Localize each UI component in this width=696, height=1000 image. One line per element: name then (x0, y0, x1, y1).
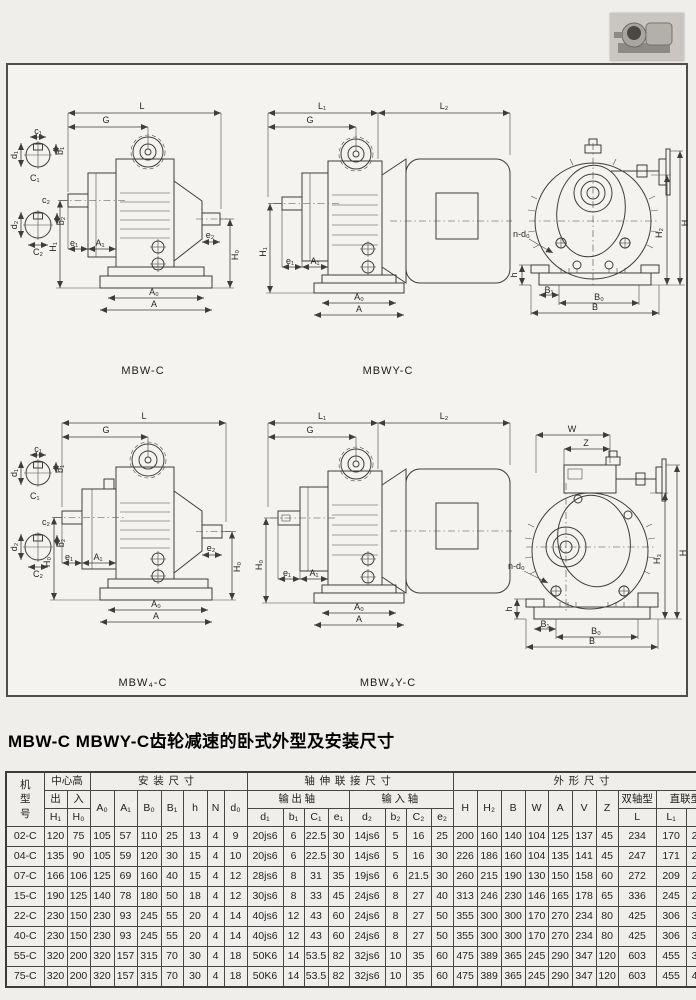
value-cell: 365 (501, 967, 525, 988)
value-cell: 313 (453, 887, 477, 907)
value-cell: 104 (525, 847, 548, 867)
value-cell: 5 (385, 827, 406, 847)
value-cell: 425 (618, 927, 656, 947)
value-cell: 6 (283, 827, 304, 847)
value-cell: 75 (67, 827, 90, 847)
header-in-shaft: 输入轴 (349, 791, 453, 809)
value-cell: 120 (137, 847, 161, 867)
header-L2: L₂ (686, 809, 696, 827)
value-cell: 135 (548, 847, 572, 867)
model-cell: 07-C (6, 867, 44, 887)
value-cell: 4 (207, 947, 224, 967)
value-cell: 30 (431, 847, 453, 867)
value-cell: 125 (67, 887, 90, 907)
header-N: N (207, 791, 224, 827)
header-shaft-conn: 轴伸联接尺寸 (247, 772, 453, 791)
value-cell: 603 (618, 947, 656, 967)
model-cell: 02-C (6, 827, 44, 847)
value-cell: 80 (596, 927, 618, 947)
value-cell: 93 (114, 907, 137, 927)
dim-label: L₁ (318, 101, 326, 111)
dim-label: G (306, 425, 313, 435)
dim-label: L₁ (318, 411, 326, 421)
dim-label: d₂ (9, 220, 19, 229)
value-cell: 32js6 (349, 967, 385, 988)
value-cell: 200 (686, 827, 696, 847)
value-cell: 306 (656, 907, 686, 927)
dim-label: H₃ (652, 554, 662, 564)
value-cell: 455 (656, 967, 686, 988)
value-cell: 14 (224, 907, 247, 927)
value-cell: 347 (572, 967, 596, 988)
header-d0: d₀ (224, 791, 247, 827)
value-cell: 157 (114, 967, 137, 988)
value-cell: 30 (328, 847, 349, 867)
value-cell: 24js6 (349, 927, 385, 947)
value-cell: 180 (137, 887, 161, 907)
value-cell: 40 (161, 867, 183, 887)
header-direct-type: 直联型 (656, 791, 696, 809)
value-cell: 45 (596, 847, 618, 867)
value-cell: 320 (44, 947, 67, 967)
dim-label: B₀ (594, 292, 604, 302)
value-cell: 25 (431, 827, 453, 847)
value-cell: 247 (618, 847, 656, 867)
value-cell: 245 (686, 867, 696, 887)
value-cell: 246 (477, 887, 501, 907)
value-cell: 130 (525, 867, 548, 887)
dim-label: L (139, 101, 144, 111)
value-cell: 306 (656, 927, 686, 947)
value-cell: 158 (572, 867, 596, 887)
value-cell: 33 (304, 887, 328, 907)
value-cell: 230 (44, 907, 67, 927)
value-cell: 4 (207, 867, 224, 887)
value-cell: 43 (304, 927, 328, 947)
value-cell: 355 (453, 927, 477, 947)
value-cell: 300 (477, 927, 501, 947)
value-cell: 120 (596, 947, 618, 967)
value-cell: 347 (572, 947, 596, 967)
value-cell: 8 (385, 907, 406, 927)
value-cell: 18 (224, 947, 247, 967)
header-d1: d₁ (247, 809, 283, 827)
dim-label: B (592, 302, 598, 312)
value-cell: 32js6 (349, 947, 385, 967)
header-B0: B₀ (137, 791, 161, 827)
value-cell: 603 (618, 967, 656, 988)
value-cell: 160 (477, 827, 501, 847)
value-cell: 45 (328, 887, 349, 907)
caption-mbw4-c: MBW₄-C (58, 677, 228, 689)
value-cell: 30 (431, 867, 453, 887)
dim-label: C₁ (30, 173, 40, 183)
value-cell: 389 (477, 947, 501, 967)
header-L1: L₁ (656, 809, 686, 827)
dim-label: C₂ (33, 569, 43, 579)
value-cell: 12 (224, 867, 247, 887)
value-cell: 165 (548, 887, 572, 907)
value-cell: 160 (501, 847, 525, 867)
value-cell: 4 (207, 847, 224, 867)
value-cell: 270 (548, 927, 572, 947)
value-cell: 70 (161, 967, 183, 988)
model-cell: 04-C (6, 847, 44, 867)
header-A: A (548, 791, 572, 827)
value-cell: 93 (114, 927, 137, 947)
value-cell: 22.5 (304, 827, 328, 847)
value-cell: 12 (283, 927, 304, 947)
header-row-1: 机型号 中心高 安装尺寸 轴伸联接尺寸 外形尺寸 (6, 772, 696, 791)
value-cell: 40js6 (247, 927, 283, 947)
value-cell: 9 (224, 827, 247, 847)
value-cell: 10 (385, 967, 406, 988)
value-cell: 320 (44, 967, 67, 988)
header-H0: H₀ (67, 809, 90, 827)
value-cell: 30js6 (247, 887, 283, 907)
table-row: 55-C320200320157315703041850K61453.58232… (6, 947, 696, 967)
value-cell: 455 (656, 947, 686, 967)
dim-label: e₁ (70, 238, 78, 248)
dim-label: H₀ (254, 560, 264, 570)
product-photo-art (610, 13, 684, 61)
value-cell: 389 (477, 967, 501, 988)
table-row: 15-C19012514078180501841230js68334524js6… (6, 887, 696, 907)
value-cell: 14 (283, 947, 304, 967)
header-C2: C₂ (406, 809, 431, 827)
spec-table-body: 02-C120751055711025134920js6622.53014js6… (6, 827, 696, 988)
dim-label: H₂ (654, 228, 664, 238)
value-cell: 18 (183, 887, 207, 907)
dim-label: A₀ (149, 287, 159, 297)
value-cell: 20js6 (247, 847, 283, 867)
value-cell: 475 (453, 967, 477, 988)
value-cell: 300 (477, 907, 501, 927)
dim-label: H (680, 220, 690, 227)
dim-label: C₁ (30, 491, 40, 501)
value-cell: 137 (572, 827, 596, 847)
dim-label: n-d₀ (513, 229, 530, 239)
value-cell: 50K6 (247, 967, 283, 988)
value-cell: 104 (525, 827, 548, 847)
dim-label: H₀ (42, 557, 52, 567)
dim-label: L (141, 411, 146, 421)
value-cell: 69 (114, 867, 137, 887)
value-cell: 365 (501, 947, 525, 967)
value-cell: 20 (183, 907, 207, 927)
value-cell: 170 (525, 927, 548, 947)
value-cell: 21.5 (406, 867, 431, 887)
value-cell: 320 (90, 967, 114, 988)
drawing-mbw4y-c: L₁ L₂ G H₀ e₁ A₁ A₀ A (260, 407, 515, 642)
header-h: h (183, 791, 207, 827)
dim-label: c₂ (42, 195, 51, 205)
value-cell: 4 (207, 967, 224, 988)
value-cell: 290 (548, 967, 572, 988)
value-cell: 320 (90, 947, 114, 967)
value-cell: 22.5 (304, 847, 328, 867)
value-cell: 125 (548, 827, 572, 847)
drawing-mbw4-c: c₁ b₁ d₁ C₁ c₂ b₂ d₂ C₂ L G (16, 407, 256, 642)
header-H2: H₂ (477, 791, 501, 827)
header-out-shaft: 输出轴 (247, 791, 349, 809)
value-cell: 150 (67, 927, 90, 947)
header-A0: A₀ (90, 791, 114, 827)
dim-label: C₂ (33, 247, 43, 257)
dim-label: H₁ (48, 242, 58, 252)
drawing-end-view-top: h n-d₀ B₁ B₀ B H₂ H (513, 113, 688, 318)
value-cell: 230 (501, 887, 525, 907)
value-cell: 300 (501, 927, 525, 947)
value-cell: 10 (385, 947, 406, 967)
value-cell: 200 (453, 827, 477, 847)
value-cell: 80 (596, 907, 618, 927)
value-cell: 230 (90, 927, 114, 947)
value-cell: 14js6 (349, 847, 385, 867)
value-cell: 60 (328, 907, 349, 927)
value-cell: 27 (406, 927, 431, 947)
dim-label: A₁ (310, 256, 319, 266)
value-cell: 30 (161, 847, 183, 867)
value-cell: 160 (137, 867, 161, 887)
value-cell: 53.5 (304, 947, 328, 967)
dim-label: W (568, 424, 577, 434)
value-cell: 43 (304, 907, 328, 927)
value-cell: 35 (406, 967, 431, 988)
value-cell: 178 (572, 887, 596, 907)
dim-label: c₂ (42, 517, 51, 527)
value-cell: 141 (572, 847, 596, 867)
catalog-page: { "title": "MBW-C MBWY-C齿轮减速的卧式外型及安装尺寸",… (0, 0, 696, 1000)
model-cell: 75-C (6, 967, 44, 988)
header-Z: Z (596, 791, 618, 827)
value-cell: 14 (283, 967, 304, 988)
header-row-2: 出 入 A₀ A₁ B₀ B₁ h N d₀ 输出轴 输入轴 H H₂ B W … (6, 791, 696, 809)
header-model: 机型号 (6, 772, 44, 827)
section-title: MBW-C MBWY-C齿轮减速的卧式外型及安装尺寸 (8, 727, 395, 752)
header-e2: e₂ (431, 809, 453, 827)
value-cell: 157 (114, 947, 137, 967)
header-B: B (501, 791, 525, 827)
dim-label: c₁ (34, 444, 42, 454)
value-cell: 120 (596, 967, 618, 988)
value-cell: 70 (161, 947, 183, 967)
value-cell: 19js6 (349, 867, 385, 887)
dim-label: A₁ (95, 238, 104, 248)
caption-mbwy-c: MBWY-C (303, 365, 473, 377)
model-cell: 15-C (6, 887, 44, 907)
value-cell: 209 (656, 867, 686, 887)
value-cell: 60 (431, 967, 453, 988)
dim-label: e₁ (65, 552, 73, 562)
value-cell: 190 (44, 887, 67, 907)
dim-label: A₀ (354, 602, 364, 612)
header-d2: d₂ (349, 809, 385, 827)
value-cell: 200 (67, 947, 90, 967)
value-cell: 235 (686, 847, 696, 867)
value-cell: 50 (431, 927, 453, 947)
value-cell: 234 (572, 907, 596, 927)
header-outline: 外形尺寸 (453, 772, 696, 791)
value-cell: 395 (686, 947, 696, 967)
value-cell: 290 (548, 947, 572, 967)
value-cell: 135 (44, 847, 67, 867)
header-center-height: 中心高 (44, 772, 90, 791)
value-cell: 475 (453, 947, 477, 967)
value-cell: 60 (431, 947, 453, 967)
value-cell: 35 (328, 867, 349, 887)
dim-label: G (306, 115, 313, 125)
header-b2: b₂ (385, 809, 406, 827)
value-cell: 5 (385, 847, 406, 867)
value-cell: 16 (406, 827, 431, 847)
value-cell: 31 (304, 867, 328, 887)
caption-mbw-c: MBW-C (58, 365, 228, 377)
dim-label: e₁ (286, 256, 294, 266)
dim-label: Z (583, 438, 589, 448)
table-row: 40-C23015023093245552041440js612436024js… (6, 927, 696, 947)
header-C1: C₁ (304, 809, 328, 827)
product-photo (610, 13, 684, 61)
dim-label: H₁ (258, 247, 268, 257)
value-cell: 186 (477, 847, 501, 867)
value-cell: 315 (137, 947, 161, 967)
value-cell: 260 (453, 867, 477, 887)
value-cell: 30 (328, 827, 349, 847)
value-cell: 25 (161, 827, 183, 847)
header-out: 出 (44, 791, 67, 809)
model-cell: 22-C (6, 907, 44, 927)
header-mounting: 安装尺寸 (90, 772, 247, 791)
value-cell: 245 (137, 927, 161, 947)
value-cell: 245 (137, 907, 161, 927)
value-cell: 4 (207, 907, 224, 927)
dim-label: G (102, 115, 109, 125)
value-cell: 105 (90, 847, 114, 867)
table-row: 22-C23015023093245552041440js612436024js… (6, 907, 696, 927)
value-cell: 45 (596, 827, 618, 847)
value-cell: 245 (525, 947, 548, 967)
dim-label: e₁ (283, 568, 291, 578)
value-cell: 110 (137, 827, 161, 847)
header-L: L (618, 809, 656, 827)
value-cell: 40js6 (247, 907, 283, 927)
value-cell: 146 (525, 887, 548, 907)
value-cell: 8 (385, 927, 406, 947)
value-cell: 12 (283, 907, 304, 927)
header-b1: b₁ (283, 809, 304, 827)
value-cell: 59 (114, 847, 137, 867)
dim-label: c₁ (34, 126, 42, 136)
dim-label: H₀ (232, 562, 242, 572)
dim-label: b₂ (56, 538, 66, 547)
value-cell: 234 (618, 827, 656, 847)
dim-label: d₂ (9, 542, 19, 551)
value-cell: 78 (114, 887, 137, 907)
dim-label: A (151, 299, 157, 309)
value-cell: 215 (477, 867, 501, 887)
value-cell: 82 (328, 967, 349, 988)
value-cell: 50 (161, 887, 183, 907)
dim-label: A (356, 614, 362, 624)
value-cell: 200 (67, 967, 90, 988)
value-cell: 150 (548, 867, 572, 887)
value-cell: 14js6 (349, 827, 385, 847)
dim-label: G (102, 425, 109, 435)
header-H: H (453, 791, 477, 827)
value-cell: 12 (224, 887, 247, 907)
value-cell: 8 (385, 887, 406, 907)
value-cell: 60 (328, 927, 349, 947)
value-cell: 15 (183, 847, 207, 867)
value-cell: 24js6 (349, 907, 385, 927)
value-cell: 15 (183, 867, 207, 887)
dim-label: d₁ (9, 469, 19, 477)
value-cell: 336 (618, 887, 656, 907)
value-cell: 140 (501, 827, 525, 847)
dim-label: B₁ (540, 619, 549, 629)
value-cell: 106 (67, 867, 90, 887)
value-cell: 120 (44, 827, 67, 847)
dim-label: e₂ (206, 230, 215, 240)
value-cell: 24js6 (349, 887, 385, 907)
value-cell: 105 (90, 827, 114, 847)
value-cell: 171 (656, 847, 686, 867)
dim-label: L₂ (440, 101, 449, 111)
value-cell: 18 (224, 967, 247, 988)
value-cell: 285 (686, 887, 696, 907)
value-cell: 35 (406, 947, 431, 967)
value-cell: 245 (525, 967, 548, 988)
value-cell: 234 (572, 927, 596, 947)
value-cell: 65 (596, 887, 618, 907)
value-cell: 425 (618, 907, 656, 927)
value-cell: 230 (90, 907, 114, 927)
dim-label: b₂ (56, 216, 66, 225)
value-cell: 90 (67, 847, 90, 867)
value-cell: 170 (656, 827, 686, 847)
value-cell: 150 (67, 907, 90, 927)
value-cell: 4 (207, 827, 224, 847)
value-cell: 57 (114, 827, 137, 847)
dim-label: H₀ (230, 250, 240, 260)
value-cell: 270 (548, 907, 572, 927)
dim-label: B₁ (544, 285, 553, 295)
value-cell: 20js6 (247, 827, 283, 847)
spec-table: 机型号 中心高 安装尺寸 轴伸联接尺寸 外形尺寸 出 入 A₀ A₁ B₀ B₁… (5, 771, 696, 988)
value-cell: 6 (283, 847, 304, 867)
value-cell: 20 (183, 927, 207, 947)
table-row: 07-C16610612569160401541228js68313519js6… (6, 867, 696, 887)
value-cell: 30 (183, 947, 207, 967)
drawing-mbwy-c: L₁ L₂ G H₁ e₁ A₁ A₀ A (260, 97, 515, 332)
value-cell: 272 (618, 867, 656, 887)
header-in: 入 (67, 791, 90, 809)
value-cell: 300 (501, 907, 525, 927)
value-cell: 166 (44, 867, 67, 887)
value-cell: 226 (453, 847, 477, 867)
header-W: W (525, 791, 548, 827)
dim-label: h (504, 606, 514, 611)
value-cell: 8 (283, 887, 304, 907)
value-cell: 140 (90, 887, 114, 907)
value-cell: 320 (686, 907, 696, 927)
value-cell: 30 (183, 967, 207, 988)
dim-label: B₀ (591, 626, 601, 636)
value-cell: 170 (525, 907, 548, 927)
value-cell: 60 (596, 867, 618, 887)
value-cell: 40 (431, 887, 453, 907)
